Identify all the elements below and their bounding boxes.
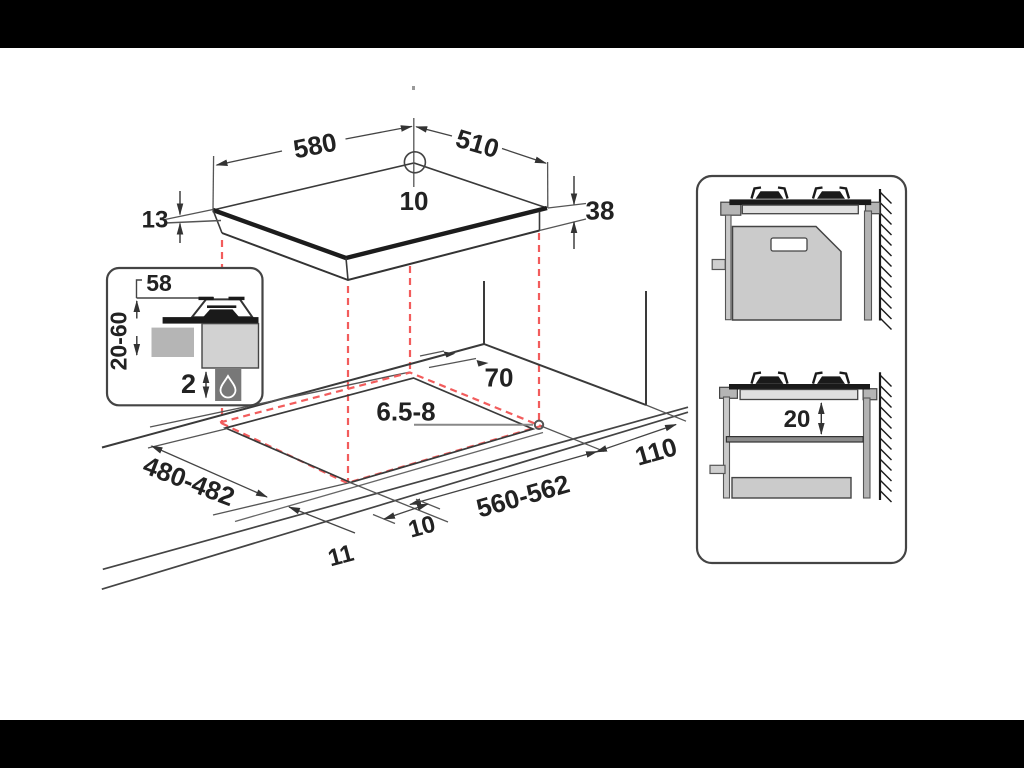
- svg-text:58: 58: [146, 270, 172, 296]
- svg-text:38: 38: [586, 195, 615, 225]
- svg-text:20: 20: [784, 406, 811, 433]
- svg-text:70: 70: [485, 363, 514, 393]
- svg-text:20-60: 20-60: [106, 312, 132, 371]
- svg-text:13: 13: [142, 207, 169, 234]
- svg-text:6.5-8: 6.5-8: [376, 397, 435, 427]
- svg-text:2: 2: [181, 369, 196, 399]
- svg-text:10: 10: [400, 186, 429, 216]
